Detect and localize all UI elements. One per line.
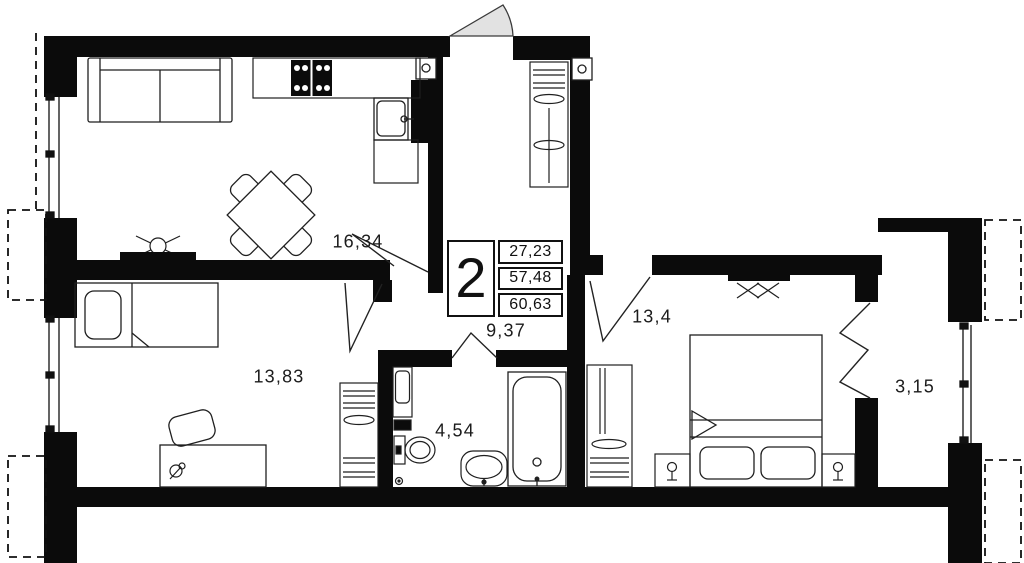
kitchen-counter bbox=[253, 58, 420, 183]
ceiling-light-icon bbox=[150, 238, 166, 254]
sofa bbox=[88, 58, 232, 122]
desk bbox=[160, 445, 266, 487]
washbasin bbox=[461, 451, 507, 486]
vent-icon bbox=[572, 58, 592, 80]
entrance-door bbox=[450, 5, 513, 36]
wardrobe bbox=[340, 383, 378, 487]
living-area-value: 27,23 bbox=[498, 240, 563, 264]
blanket-fold bbox=[692, 411, 716, 439]
balcony-door bbox=[840, 303, 870, 398]
total-area-value: 60,63 bbox=[498, 293, 563, 317]
window bbox=[46, 94, 59, 218]
single-bed bbox=[75, 283, 218, 347]
window bbox=[960, 323, 971, 443]
plant-icon bbox=[170, 463, 185, 479]
rooms-count: 2 bbox=[447, 240, 495, 317]
pillow bbox=[700, 447, 754, 479]
stove bbox=[291, 60, 332, 96]
desk-chair bbox=[167, 408, 217, 448]
area-label-living-kitchen: 16,34 bbox=[332, 232, 383, 253]
nightstand bbox=[822, 454, 855, 487]
pillow bbox=[85, 291, 121, 339]
window bbox=[46, 316, 59, 432]
kitchen-sink bbox=[374, 98, 414, 140]
area-label-hallway: 9,37 bbox=[486, 321, 526, 342]
unit-summary-box: 2 27,23 57,48 60,63 bbox=[447, 240, 563, 317]
area-label-second-room: 13,83 bbox=[253, 367, 304, 388]
floor-plan: 16,34 13,83 9,37 4,54 13,4 3,15 2 27,23 … bbox=[0, 0, 1024, 563]
wall-tv bbox=[728, 272, 790, 298]
area-label-bathroom: 4,54 bbox=[435, 421, 475, 442]
bathtub bbox=[508, 372, 566, 486]
toilet bbox=[394, 436, 435, 464]
floor-drain-icon bbox=[396, 478, 403, 485]
vent-icon bbox=[416, 58, 436, 79]
hall-wardrobe bbox=[530, 62, 568, 187]
area-label-bedroom: 13,4 bbox=[632, 307, 672, 328]
washing-machine bbox=[393, 367, 412, 430]
apartment-area-value: 57,48 bbox=[498, 267, 563, 291]
double-bed bbox=[690, 335, 822, 487]
tv-stand bbox=[120, 236, 196, 260]
nightstand bbox=[655, 454, 690, 487]
dining-table bbox=[227, 171, 315, 259]
pillow bbox=[761, 447, 815, 479]
bedroom-wardrobe bbox=[587, 365, 632, 487]
area-label-balcony: 3,15 bbox=[895, 377, 935, 398]
